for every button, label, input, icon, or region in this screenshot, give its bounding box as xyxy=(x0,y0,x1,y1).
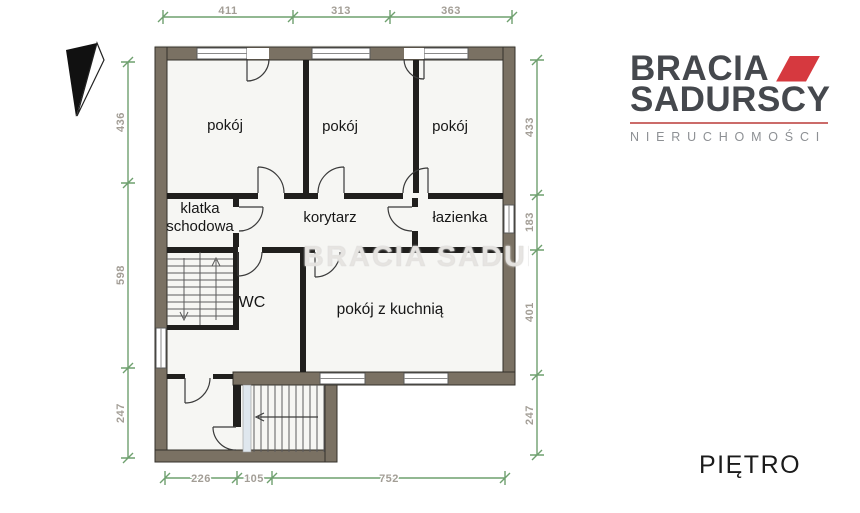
room-label-pokoj-3: pokój xyxy=(432,118,468,135)
wall-room1-room2 xyxy=(303,60,309,193)
wall-staircase-corridor-b xyxy=(233,233,239,247)
wall-under-corridor xyxy=(262,247,315,253)
room-label-lazienka: łazienka xyxy=(432,209,488,226)
wall-extension-top-a xyxy=(167,374,185,379)
logo-roof-icon xyxy=(776,56,820,82)
balcony-door-opening-room1 xyxy=(247,48,269,59)
wall-left xyxy=(155,47,167,457)
wall-room2-room3 xyxy=(413,60,419,193)
room-label-pokoj-2: pokój xyxy=(322,118,358,135)
wall-corridor-bathroom-b xyxy=(412,231,418,247)
logo-brand-line2: SADURSCY xyxy=(630,84,836,115)
wall-bottom-main xyxy=(233,372,515,385)
floorplan-page: 411 313 363 226 105 752 436 598 247 433 … xyxy=(0,0,860,513)
room-label-klatka-line1: klatka xyxy=(180,200,220,217)
logo-divider xyxy=(630,122,828,124)
dimension-line-right xyxy=(530,55,544,460)
agency-logo: BRACIA SADURSCY NIERUCHOMOŚCI xyxy=(630,53,836,144)
room-label-korytarz: korytarz xyxy=(303,209,356,226)
dim-left-1: 436 xyxy=(115,112,127,132)
dim-bottom-3: 752 xyxy=(379,473,399,485)
dim-right-1: 433 xyxy=(524,117,536,137)
wall-stairwell-bottom xyxy=(167,325,233,330)
floor-name-label: PIĘTRO xyxy=(699,451,801,480)
wall-extension-stairs xyxy=(233,385,241,427)
wall-under-room3 xyxy=(428,193,503,199)
dim-right-2: 183 xyxy=(524,212,536,232)
wall-under-bathroom xyxy=(358,247,503,253)
dim-left-2: 598 xyxy=(115,265,127,285)
room-label-wc: WC xyxy=(239,294,266,311)
dim-left-3: 247 xyxy=(115,403,127,423)
room-label-pokoj-z-kuchnia: pokój z kuchnią xyxy=(337,301,444,318)
dimension-line-bottom xyxy=(160,471,510,485)
wall-extension-top-b xyxy=(213,374,233,379)
dim-top-1: 411 xyxy=(218,5,237,17)
wall-under-staircase xyxy=(167,247,238,253)
dim-top-3: 363 xyxy=(441,5,461,17)
wall-under-rooms-12 xyxy=(284,193,318,199)
wall-staircase-corridor-a xyxy=(233,198,239,207)
dim-bottom-1: 226 xyxy=(191,473,211,485)
room-label-klatka-line2: schodowa xyxy=(166,218,234,235)
dim-right-4: 247 xyxy=(524,405,536,425)
dim-bottom-2: 105 xyxy=(244,473,264,485)
wall-stairs-right xyxy=(325,385,337,462)
north-arrow-icon xyxy=(66,43,104,117)
wall-under-room2 xyxy=(344,193,403,199)
room-label-pokoj-1: pokój xyxy=(207,117,243,134)
wall-wc-kitchenroom xyxy=(300,252,306,372)
wall-corridor-bathroom-a xyxy=(412,198,418,207)
wall-under-room1 xyxy=(167,193,258,199)
balcony-door-opening-room3 xyxy=(404,48,424,59)
logo-tagline: NIERUCHOMOŚCI xyxy=(630,130,836,144)
dim-right-3: 401 xyxy=(524,302,536,322)
dim-top-2: 313 xyxy=(331,5,351,17)
stair-landing-strip xyxy=(243,385,251,452)
